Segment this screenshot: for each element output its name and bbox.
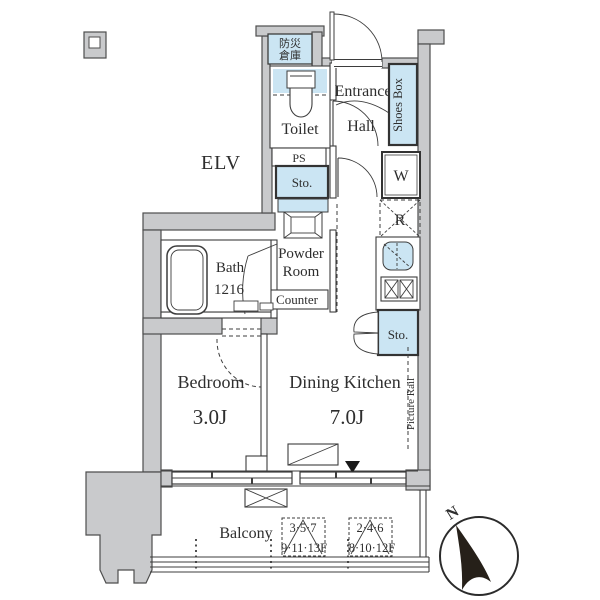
hall-door-arc (338, 158, 377, 197)
pipe-space: PS (272, 148, 326, 166)
bathroom: Bath 1216 (161, 240, 277, 314)
ps-label: PS (292, 151, 305, 165)
shoes-box: Shoes Box (389, 64, 417, 145)
washer-space: W (382, 152, 420, 198)
dining-kitchen: Dining Kitchen 7.0J Picture Rail (288, 347, 417, 473)
washer-label: W (393, 168, 409, 185)
hall-label: Hall (347, 118, 375, 135)
floor-note-odd: 3·5·7 9·11·13F (281, 518, 327, 556)
elevator-area: ELV (201, 152, 241, 174)
bifold-door-lower (354, 333, 378, 354)
compass: N (440, 503, 518, 595)
floor-plan-drawing: ELV 防災 倉庫 Toilet Entrance Hall Shoes Box (0, 0, 600, 600)
storage-upper: Sto. (276, 166, 328, 198)
floor-note-odd-line2: 9·11·13F (281, 541, 327, 555)
balcony: Balcony 3·5·7 9·11·13F 2·4·6 8·10·12F (150, 489, 429, 572)
balcony-label: Balcony (219, 525, 272, 542)
floor-note-even-line1: 2·4·6 (356, 521, 383, 535)
toilet-room: Toilet (270, 66, 330, 148)
entrance-door-leaf (330, 12, 334, 60)
elevator-label: ELV (201, 152, 241, 174)
bath-label: Bath (216, 260, 245, 276)
dining-kitchen-label: Dining Kitchen (289, 372, 400, 392)
powder-room-label-line1: Powder (278, 246, 324, 262)
refrigerator-space: R (380, 200, 420, 237)
counter-label: Counter (276, 292, 319, 307)
compass-north-label: N (443, 503, 462, 524)
disaster-storage-label-line2: 倉庫 (279, 48, 301, 62)
entrance-step-line (336, 101, 389, 113)
kitchen-counter (376, 237, 420, 310)
bedroom-window (172, 472, 292, 484)
disaster-storage-label-line1: 防災 (279, 36, 301, 50)
counter-symbol (288, 444, 338, 465)
picture-rail-label: Picture Rail (405, 378, 417, 430)
balcony-railing (150, 557, 429, 572)
bifold-door-upper (354, 312, 378, 333)
floor-note-even-line2: 8·10·12F (349, 541, 396, 555)
storage-upper-label: Sto. (292, 175, 313, 190)
shoes-box-label: Shoes Box (391, 77, 405, 132)
disaster-storage: 防災 倉庫 (268, 34, 312, 64)
entrance-door-arc (334, 14, 382, 62)
floor-plan: ELV 防災 倉庫 Toilet Entrance Hall Shoes Box (0, 0, 600, 600)
bath-size-label: 1216 (214, 282, 245, 298)
bedroom: Bedroom 3.0J (178, 329, 262, 429)
floor-note-odd-line1: 3·5·7 (289, 521, 316, 535)
stove-icon (381, 277, 417, 301)
bedroom-label: Bedroom (178, 372, 245, 392)
powder-room-label-line2: Room (283, 264, 320, 280)
bedroom-size-label: 3.0J (193, 405, 227, 429)
dining-kitchen-size-label: 7.0J (330, 405, 364, 429)
toilet-icon (290, 88, 312, 117)
storage-lower-label: Sto. (388, 327, 409, 342)
dk-window (300, 472, 406, 484)
windows (172, 472, 406, 484)
evacuation-hatch-icon (245, 489, 287, 507)
toilet-label: Toilet (281, 121, 319, 138)
compass-circle (440, 517, 518, 595)
refrigerator-label: R (395, 212, 406, 229)
entrance-label: Entrance (335, 83, 392, 100)
floor-note-even: 2·4·6 8·10·12F (349, 518, 396, 556)
